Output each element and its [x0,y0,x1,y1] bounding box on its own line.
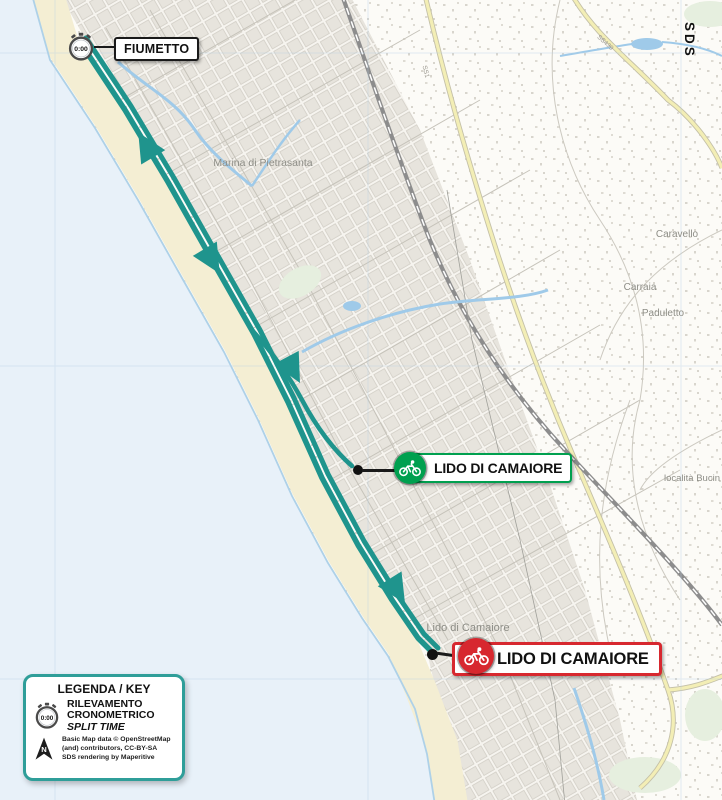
split-label-box: FIUMETTO [114,37,199,61]
legend-credit-line3: SDS rendering by Maperitive [62,754,171,763]
start-cyclist-badge [394,452,426,484]
pond [631,38,663,50]
town-label-caravello: Caravello [656,229,699,240]
start-label: LIDO DI CAMAIORE [434,460,562,476]
town-label-lido-di-camaiore: Lido di Camaiore [426,622,509,634]
legend-box: LEGENDA / KEY 0:00 RILEVAMENTO CRONOMETR… [23,674,185,781]
legend-title: LEGENDA / KEY [26,682,182,696]
north-arrow-icon: N [33,736,55,763]
north-letter: N [41,745,47,754]
legend-credit-line2: (and) contributors, CC-BY-SA [62,745,171,754]
town-label-localita-bucin: località Bucin [664,473,720,484]
split-label: FIUMETTO [124,42,189,56]
split-connector [94,46,116,49]
stopwatch-icon: 0:00 [66,32,96,62]
sds-watermark: SDS [682,22,697,59]
town-label-carraia: Carraia [624,282,657,293]
cyclist-icon [463,647,490,666]
start-connector [362,469,396,472]
legend-stopwatch-icon: 0:00 [33,702,61,730]
route-map: Marina di Pietrasanta Caravello Carraia … [0,0,722,800]
split-time-value: 0:00 [74,46,88,53]
town-label-paduletto: Paduletto [642,308,685,319]
start-label-box: LIDO DI CAMAIORE [412,453,572,483]
pond-small [343,301,361,311]
finish-label: LIDO DI CAMAIORE [497,650,649,669]
cyclist-icon [398,460,422,477]
legend-credit-line1: Basic Map data © OpenStreetMap [62,736,171,745]
legend-split-line3: SPLIT TIME [67,722,155,733]
legend-split-line2: CRONOMETRICO [67,710,155,721]
finish-cyclist-badge [458,638,494,674]
town-label-marina-di-pietrasanta: Marina di Pietrasanta [213,157,312,169]
legend-split-time-value: 0:00 [41,715,54,722]
finish-point-dot [427,649,438,660]
